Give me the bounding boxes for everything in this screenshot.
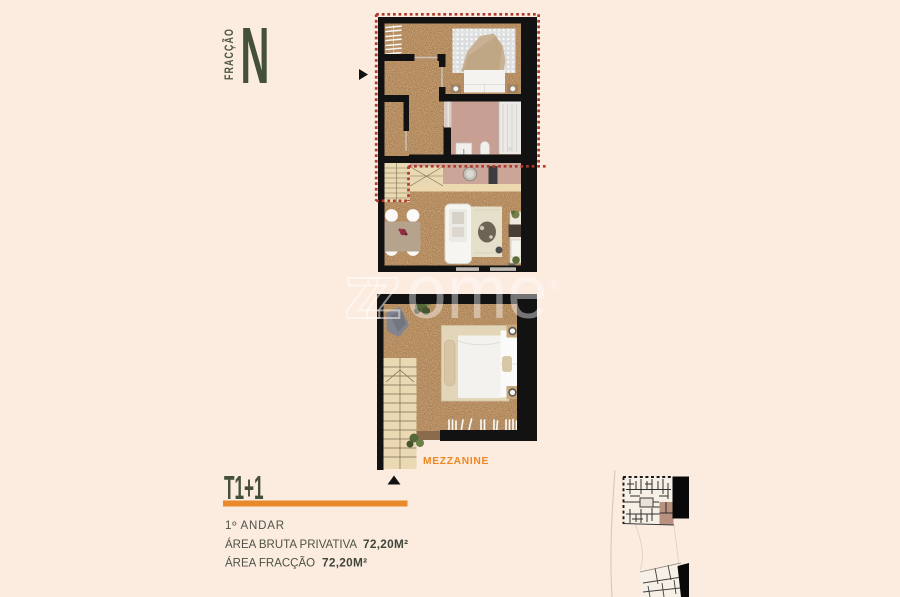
svg-text:72,20M²: 72,20M² (363, 537, 408, 551)
svg-text:ÁREA BRUTA PRIVATIVA: ÁREA BRUTA PRIVATIVA (225, 538, 357, 551)
svg-text:ÁREA FRACÇÃO: ÁREA FRACÇÃO (225, 557, 315, 570)
svg-text:N: N (241, 12, 270, 101)
svg-text:z: z (364, 250, 402, 335)
svg-text:FRACÇÃO: FRACÇÃO (223, 28, 236, 80)
svg-text:1º ANDAR: 1º ANDAR (225, 520, 285, 532)
svg-text:MEZZANINE: MEZZANINE (423, 455, 489, 467)
svg-text:®: ® (549, 277, 559, 292)
svg-text:ome: ome (406, 250, 548, 335)
svg-text:72,20M²: 72,20M² (322, 556, 367, 570)
